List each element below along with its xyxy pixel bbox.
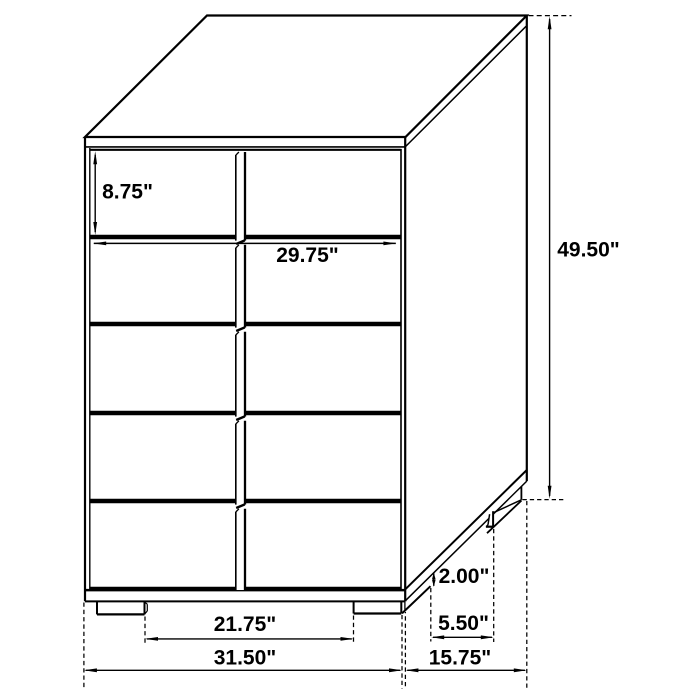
svg-text:2.00": 2.00" bbox=[439, 565, 490, 588]
svg-text:29.75": 29.75" bbox=[276, 244, 339, 267]
svg-text:8.75": 8.75" bbox=[102, 181, 153, 204]
svg-text:5.50": 5.50" bbox=[438, 612, 489, 635]
svg-text:49.50": 49.50" bbox=[557, 239, 620, 262]
svg-text:15.75": 15.75" bbox=[429, 647, 492, 670]
svg-text:21.75": 21.75" bbox=[214, 613, 277, 636]
svg-text:31.50": 31.50" bbox=[214, 647, 277, 670]
